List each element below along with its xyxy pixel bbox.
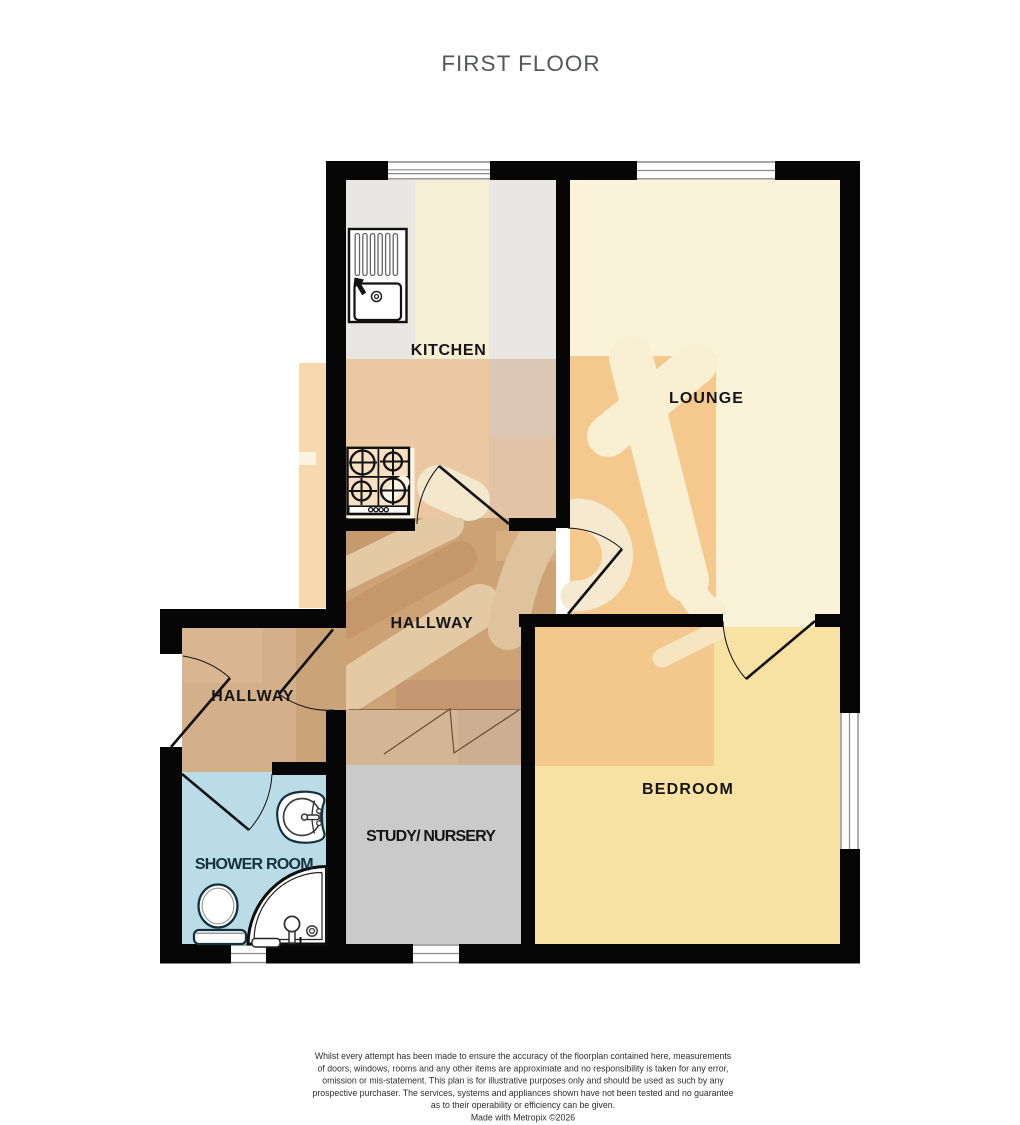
svg-text:Whilst every attempt has been: Whilst every attempt has been made to en… — [315, 1051, 732, 1061]
svg-text:HALLWAY: HALLWAY — [211, 688, 294, 705]
svg-text:of doors, windows, rooms and a: of doors, windows, rooms and any other i… — [318, 1063, 729, 1073]
svg-text:LOUNGE: LOUNGE — [669, 390, 744, 407]
svg-text:as to their operability or eff: as to their operability or efficiency ca… — [431, 1100, 615, 1110]
svg-text:SHOWER ROOM: SHOWER ROOM — [195, 856, 313, 873]
svg-text:BEDROOM: BEDROOM — [642, 781, 734, 798]
svg-text:Made with Metropix ©2026: Made with Metropix ©2026 — [471, 1113, 575, 1123]
svg-text:prospective purchaser. The ser: prospective purchaser. The services, sys… — [312, 1088, 733, 1098]
svg-text:FIRST FLOOR: FIRST FLOOR — [441, 51, 600, 76]
svg-text:KITCHEN: KITCHEN — [411, 342, 487, 359]
svg-text:HALLWAY: HALLWAY — [390, 615, 473, 632]
svg-text:omission or mis-statement. Thi: omission or mis-statement. This plan is … — [322, 1076, 724, 1086]
svg-text:STUDY/ NURSERY: STUDY/ NURSERY — [366, 828, 496, 845]
